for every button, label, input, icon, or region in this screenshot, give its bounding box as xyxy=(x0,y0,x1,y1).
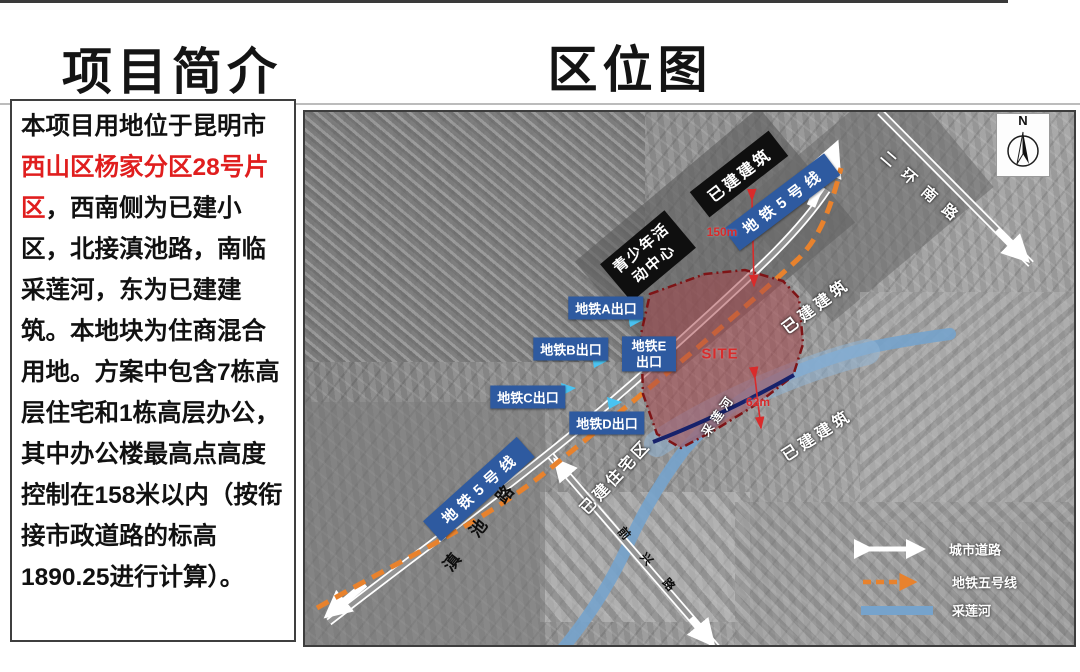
metro-exit-a-label: 地铁A出口 xyxy=(568,297,643,320)
legend-road-label: 城市道路 xyxy=(949,540,1001,559)
metro-exit-d-label: 地铁D出口 xyxy=(569,412,644,435)
road-arrow-se-erhuan xyxy=(997,230,1025,258)
intro-text-start: 本项目用地位于昆明市 xyxy=(21,113,266,140)
legend-metro-label: 地铁五号线 xyxy=(952,573,1017,592)
page-title-project-intro: 项目简介 xyxy=(22,32,322,104)
compass-needle-icon xyxy=(997,128,1049,174)
metro-exit-e-label: 地铁E出口 xyxy=(622,336,676,371)
legend-river-symbol xyxy=(861,606,933,615)
slide: 项目简介 区位图 本项目用地位于昆明市西山区杨家分区28号片区，西南侧为已建小区… xyxy=(0,0,1080,672)
project-intro-panel: 本项目用地位于昆明市西山区杨家分区28号片区，西南侧为已建小区，北接滇池路，南临… xyxy=(10,99,296,642)
dimension-150m-label: 150m xyxy=(707,225,738,239)
north-label: N xyxy=(997,114,1049,128)
north-compass: N xyxy=(996,113,1050,177)
intro-text-end: ，西南侧为已建小区，北接滇池路，南临采莲河，东为已建建筑。本地块为住商混合用地。… xyxy=(21,195,282,591)
page-title-location-map: 区位图 xyxy=(480,30,780,102)
road-arrow-se-qianxing xyxy=(691,618,711,642)
metro-exit-b-label: 地铁B出口 xyxy=(533,338,608,361)
location-map: 地铁5号线 地铁5号线 已建建筑 青少年活动中心 已建建筑 已建建筑 已建住宅区… xyxy=(303,110,1076,647)
site-label: SITE xyxy=(701,346,738,363)
project-intro-text: 本项目用地位于昆明市西山区杨家分区28号片区，西南侧为已建小区，北接滇池路，南临… xyxy=(21,106,285,598)
metro-exit-c-label: 地铁C出口 xyxy=(490,386,565,409)
legend-river-label: 采莲河 xyxy=(952,601,991,620)
dimension-62m-label: 62m xyxy=(746,395,770,409)
top-strip xyxy=(0,0,1008,3)
